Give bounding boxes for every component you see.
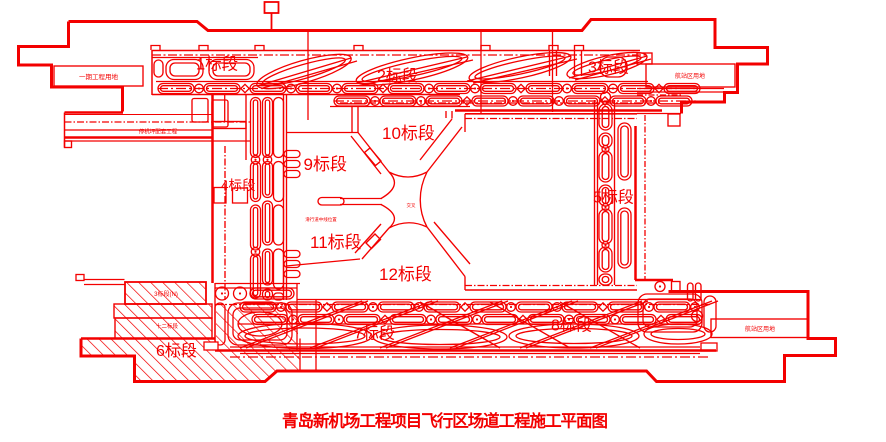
svg-text:5标段: 5标段 [593, 189, 634, 207]
svg-text:十二标段: 十二标段 [156, 322, 179, 330]
svg-text:航站区用地: 航站区用地 [675, 72, 705, 80]
svg-text:滑行道中线位置: 滑行道中线位置 [305, 216, 337, 223]
svg-text:停机坪配套工程: 停机坪配套工程 [139, 128, 178, 136]
svg-text:3标段(N): 3标段(N) [154, 290, 178, 298]
svg-text:12标段: 12标段 [379, 265, 432, 284]
svg-text:11标段: 11标段 [310, 233, 362, 252]
svg-text:3标段: 3标段 [588, 59, 629, 77]
svg-text:2标段: 2标段 [377, 67, 418, 85]
svg-text:1标段: 1标段 [196, 55, 238, 74]
svg-text:6标段: 6标段 [156, 342, 197, 360]
svg-text:航站区用地: 航站区用地 [745, 325, 775, 333]
svg-text:4标段: 4标段 [221, 178, 256, 193]
svg-text:交叉: 交叉 [407, 202, 416, 209]
svg-text:10标段: 10标段 [382, 124, 435, 143]
svg-text:青岛新机场工程项目飞行区场道工程施工平面图: 青岛新机场工程项目飞行区场道工程施工平面图 [282, 411, 608, 431]
svg-text:8标段: 8标段 [551, 317, 592, 335]
svg-text:9标段: 9标段 [304, 155, 347, 174]
svg-text:一期工程用地: 一期工程用地 [79, 72, 119, 81]
svg-text:7标段: 7标段 [354, 325, 395, 343]
